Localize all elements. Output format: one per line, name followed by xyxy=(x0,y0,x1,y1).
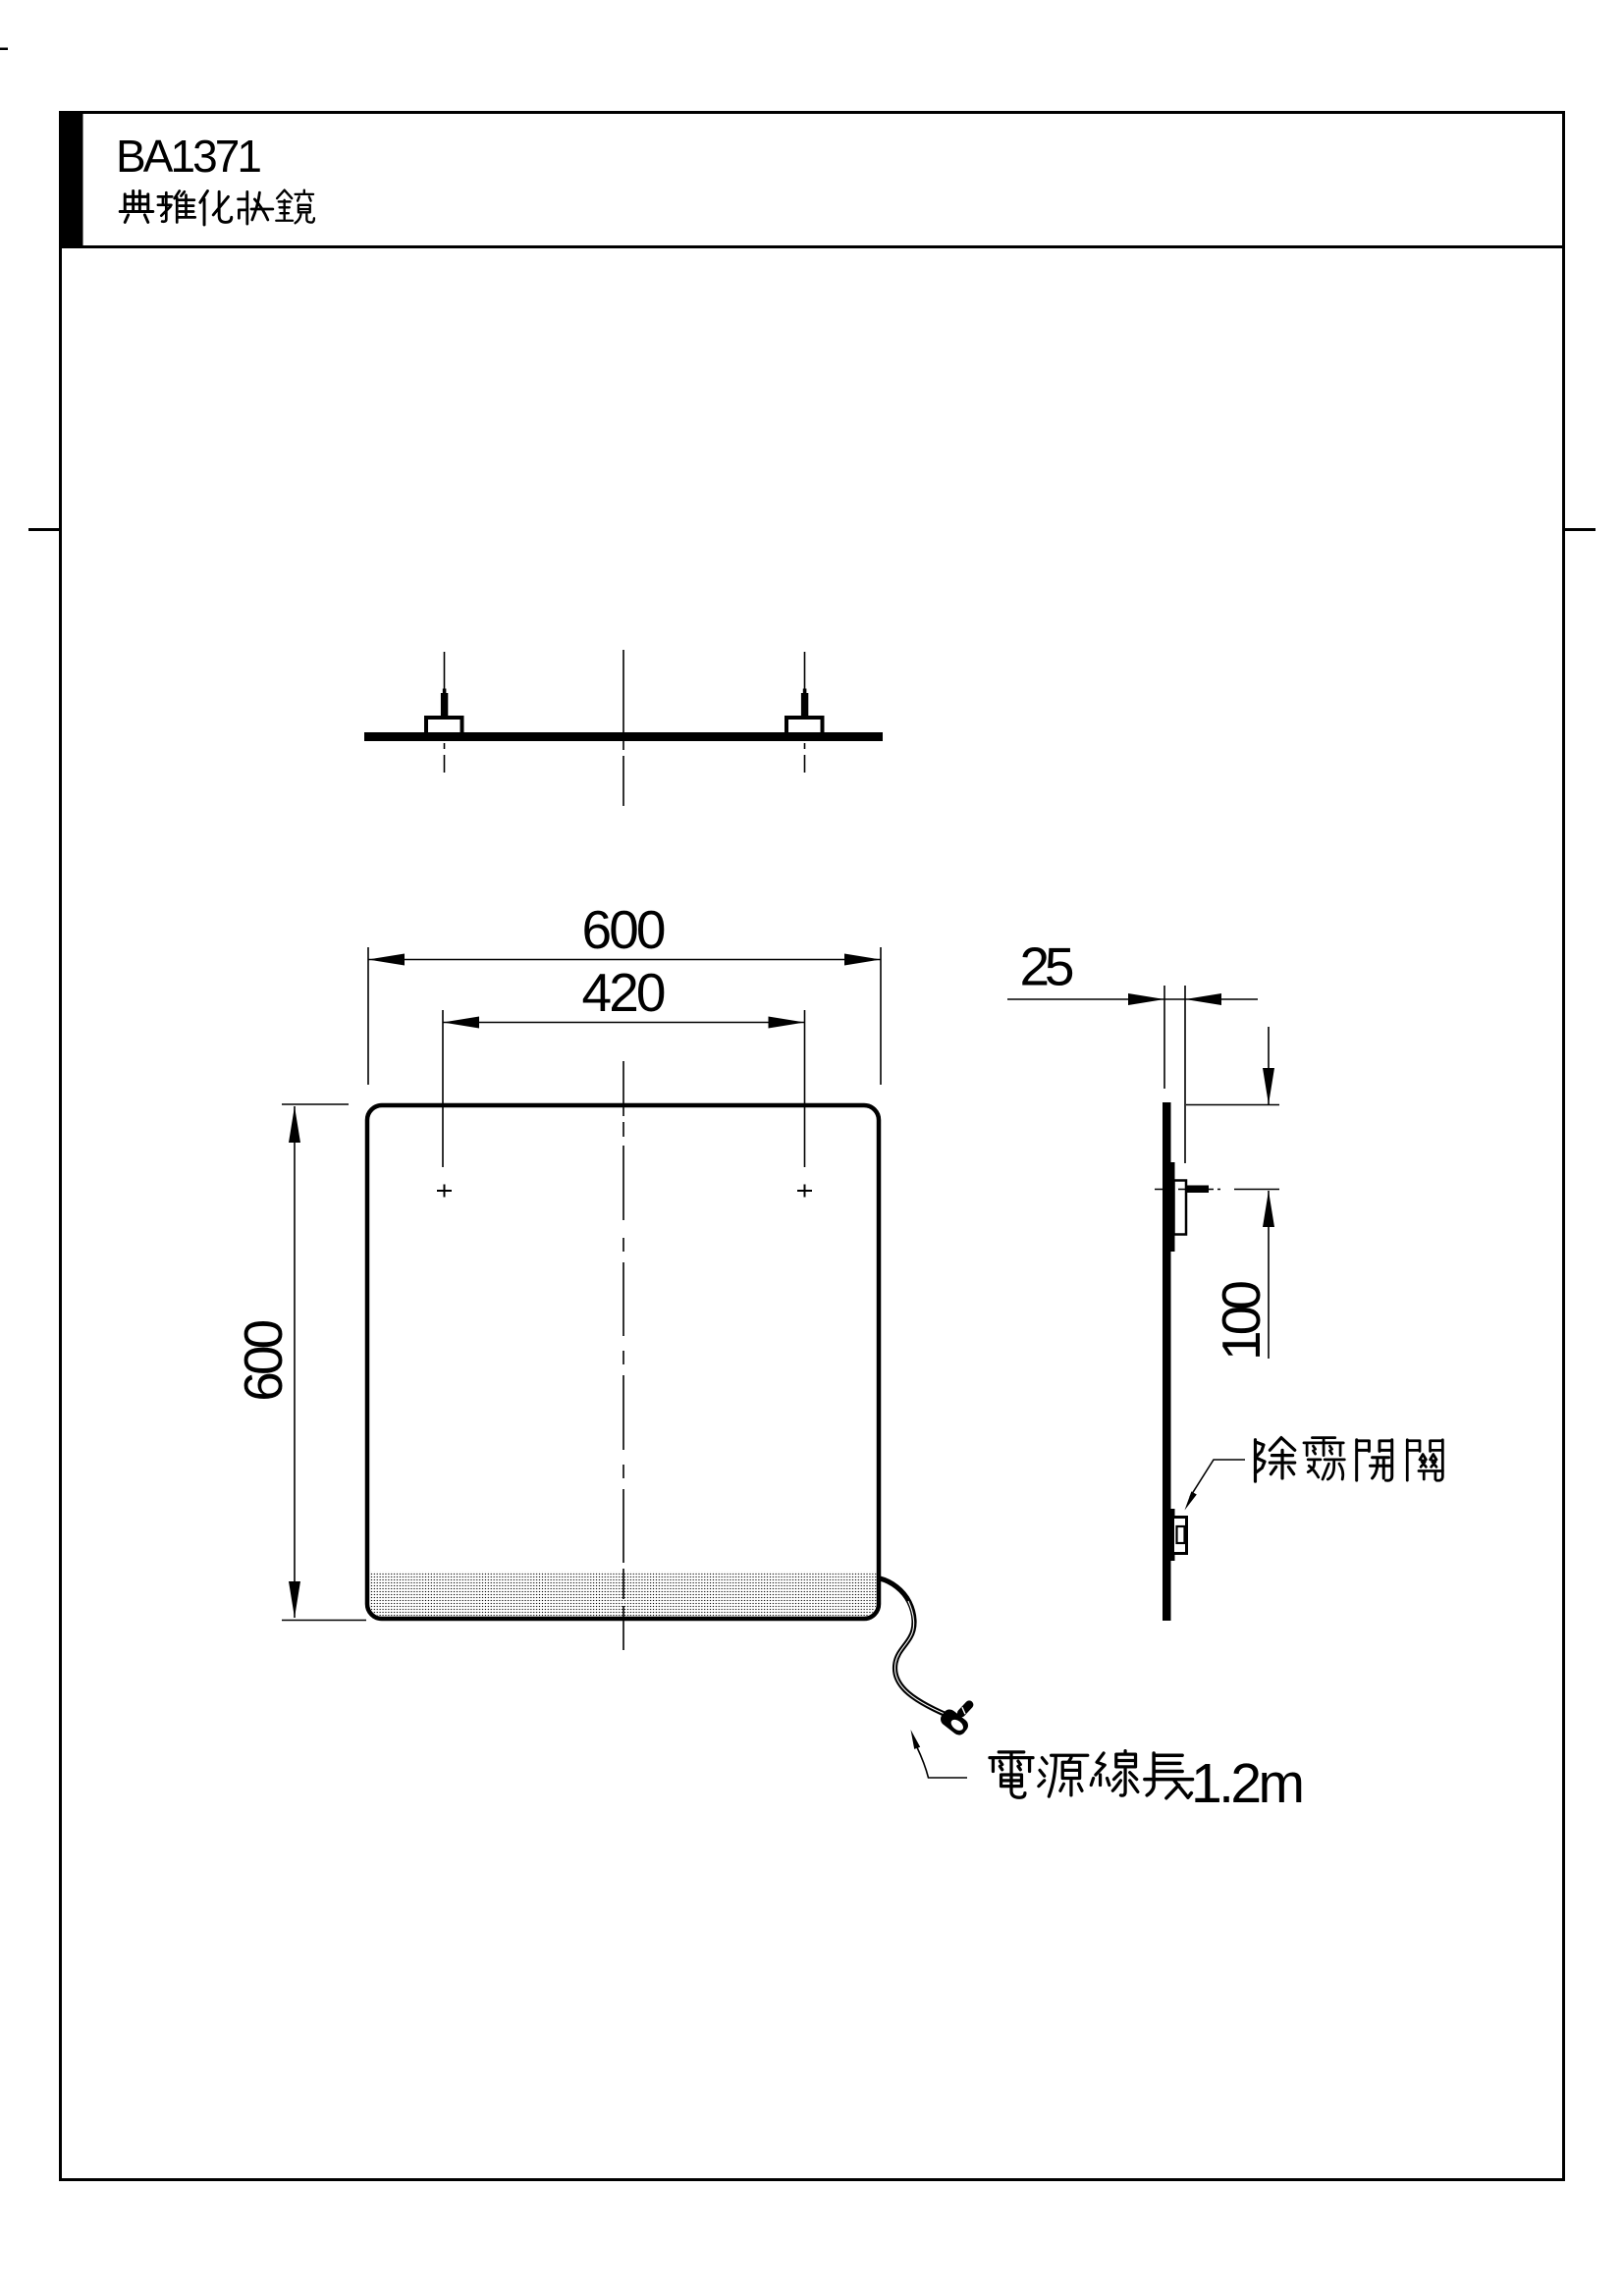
svg-text:600: 600 xyxy=(233,1319,294,1402)
svg-text:1.2m: 1.2m xyxy=(1191,1752,1305,1815)
svg-text:600: 600 xyxy=(582,899,667,960)
svg-text:100: 100 xyxy=(1211,1280,1271,1361)
svg-text:420: 420 xyxy=(582,962,667,1023)
svg-text:25: 25 xyxy=(1020,936,1075,997)
svg-text:BA1371: BA1371 xyxy=(116,131,262,182)
